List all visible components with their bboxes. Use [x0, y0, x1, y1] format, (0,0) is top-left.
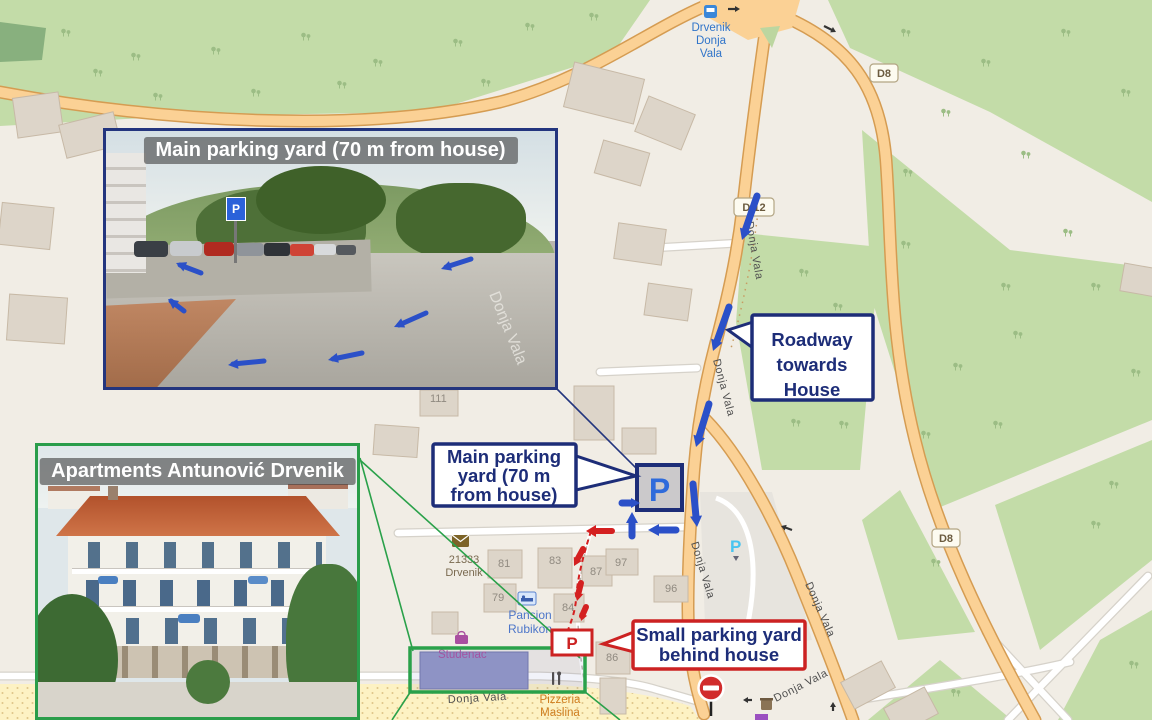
bus-stop-icon — [704, 5, 717, 18]
photo-overlay: Donja Vala — [106, 131, 555, 387]
svg-text:P: P — [566, 634, 577, 653]
bus-stop-label: Vala — [700, 48, 723, 60]
main-parking-marker: P — [637, 465, 682, 510]
svg-text:D8: D8 — [877, 68, 891, 80]
house-number: 87 — [590, 566, 602, 578]
photo-balcony-rail — [72, 606, 322, 612]
house-number: 96 — [665, 583, 677, 595]
small-parking-marker: P — [552, 630, 592, 655]
house-number: 84 — [562, 602, 574, 614]
svg-text:yard (70 m: yard (70 m — [458, 465, 551, 486]
photo-trees — [186, 660, 230, 704]
photo-arrowheads — [165, 258, 452, 370]
pizzeria-label: Pizzeria — [540, 694, 582, 706]
svg-text:House: House — [784, 379, 841, 400]
svg-text:P: P — [649, 472, 670, 508]
hotel-icon — [518, 592, 536, 605]
parking-photo-title: Main parking yard (70 m from house) — [143, 137, 517, 164]
photo-chimney — [108, 486, 118, 500]
svg-text:Roadway: Roadway — [771, 329, 853, 350]
pizzeria-label: Maslina — [540, 707, 580, 719]
svg-text:Main parking: Main parking — [447, 446, 561, 467]
house-number: 79 — [492, 592, 504, 604]
bus-stop-label: Donja — [696, 35, 727, 47]
photo-window-row — [72, 542, 322, 568]
road-badge-d8-top: D8 — [870, 64, 898, 82]
pansion-label: Pansion — [508, 608, 551, 622]
svg-text:behind house: behind house — [659, 644, 779, 665]
recycling-icon — [755, 714, 768, 720]
photo-roof — [56, 496, 340, 536]
photo-arrows — [171, 259, 471, 364]
waste-bin-icon — [760, 698, 773, 710]
apartment-photo-inset: Apartments Antunović Drvenik — [35, 443, 360, 720]
house-number: 83 — [549, 555, 561, 567]
svg-text:D8: D8 — [939, 533, 953, 545]
street-name: Donja Vala — [485, 289, 530, 367]
svg-text:towards: towards — [777, 354, 848, 375]
house-number: 111 — [430, 393, 447, 405]
svg-text:Small parking yard: Small parking yard — [636, 624, 802, 645]
pansion-label: Rubikon — [508, 622, 552, 636]
parking-photo-inset: P Donja Vala Main parking yard (70 m fro… — [103, 128, 558, 390]
photo-balcony-rail — [72, 568, 322, 574]
photo-awning — [98, 576, 118, 584]
road-badge-d8-right: D8 — [932, 529, 960, 547]
photo-awning — [248, 576, 268, 584]
apartment-photo-title: Apartments Antunović Drvenik — [39, 458, 356, 485]
callout-small-parking: Small parking yard behind house — [603, 621, 805, 669]
post-office-label: Drvenik — [445, 567, 483, 579]
house-number: 86 — [606, 652, 618, 664]
house-number: 81 — [498, 558, 510, 570]
bus-stop-label: Drvenik — [692, 22, 731, 34]
parking-icon: P — [730, 537, 741, 556]
photo-awning — [178, 614, 200, 623]
svg-text:from house): from house) — [451, 484, 558, 505]
parking-guide-map: Drvenik Donja Vala D8 D 12 D8 Donja Vala… — [0, 0, 1152, 720]
house-number: 97 — [615, 557, 627, 569]
